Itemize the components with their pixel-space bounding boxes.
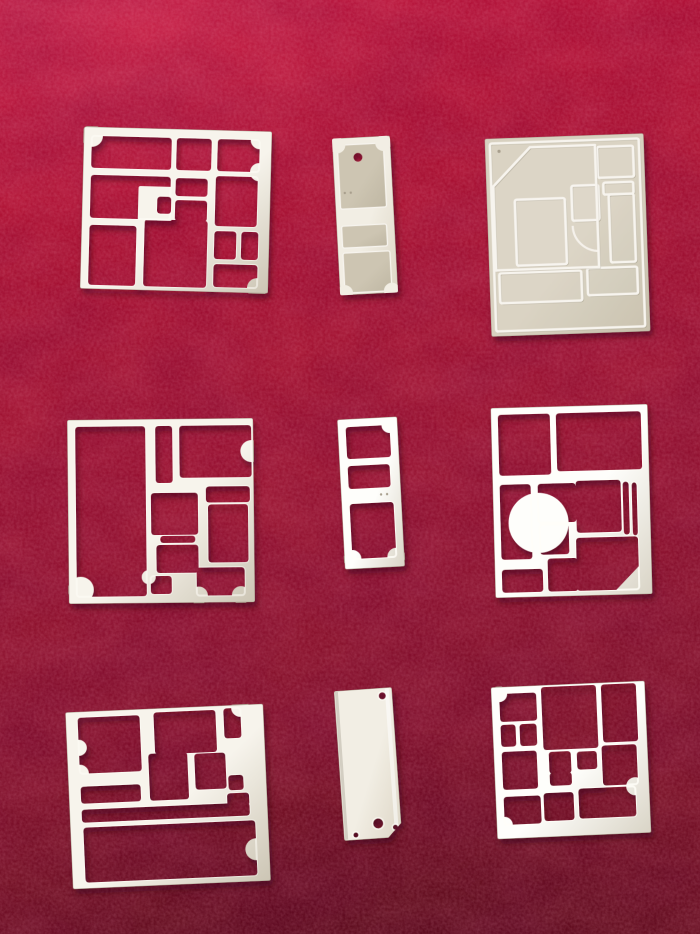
shield-frame-bottom-right xyxy=(491,681,651,840)
blank-cover-plate-bottom-center xyxy=(334,687,402,841)
velvet-photo xyxy=(0,0,700,934)
shield-frame-bottom-left xyxy=(65,704,271,889)
shield-cover-tag-top-center xyxy=(329,134,400,301)
shield-frame-middle-right xyxy=(491,404,653,598)
shield-cover-plate-top-right xyxy=(485,133,651,336)
shield-frame-small-middle-center xyxy=(337,417,405,570)
shield-frame-top-left xyxy=(80,127,272,294)
shield-frame-middle-left xyxy=(67,418,255,604)
photo-canvas xyxy=(0,0,700,934)
